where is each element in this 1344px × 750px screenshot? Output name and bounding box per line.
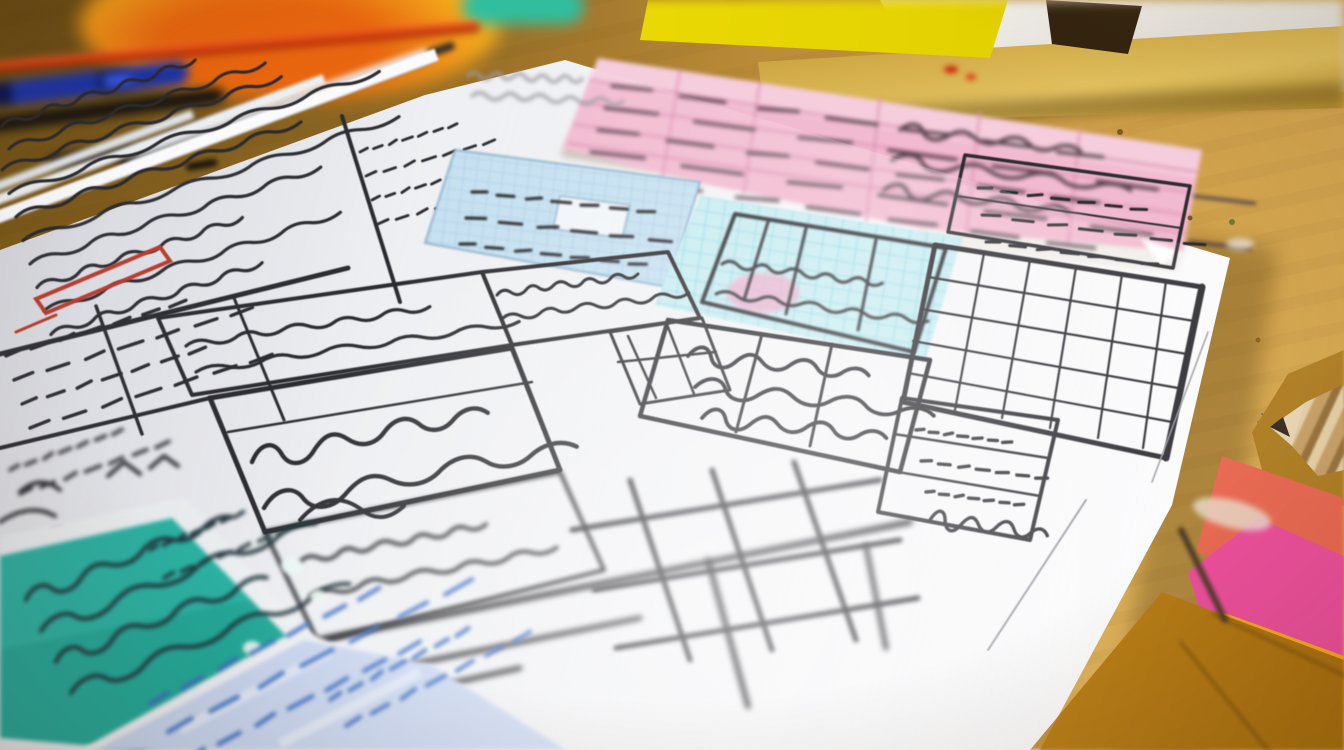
upper-left-text-block (0, 58, 401, 448)
desk-smudge (1226, 238, 1254, 250)
check-grid (572, 462, 918, 660)
photo-scene: Close-up photograph, shallow depth of fi… (0, 0, 1344, 750)
